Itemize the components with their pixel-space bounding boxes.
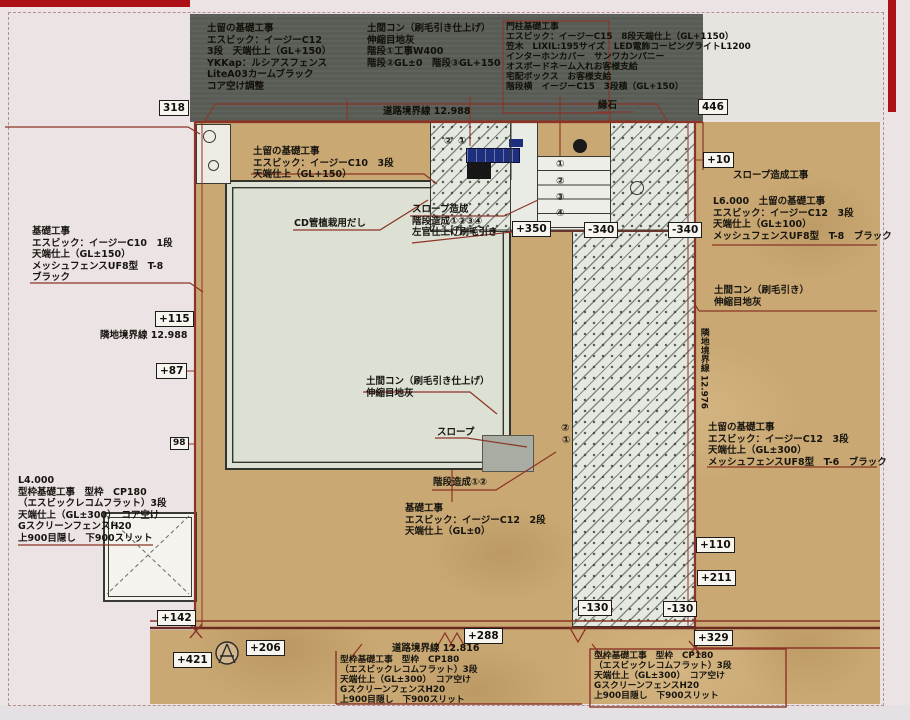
manhole-circle-2 [208,160,219,171]
note-right-slab: 土間コン（刷毛引き） 伸縮目地灰 [714,285,809,308]
dim-box-plus329: +329 [694,630,733,646]
note-bottom-center: 型枠基礎工事 型枠 CP180 （エスビックレコムフラット）3段 天端仕上（GL… [340,656,478,706]
note-slope-build: スロープ造成 階段造成①②③④ 左官仕上げ刷毛引き [412,204,498,239]
note-center-base: 基礎工事 エスビック：イージーC12 2段 天端仕上（GL±0） [405,503,546,538]
dim-box-plus288: +288 [464,628,503,644]
slope-ramp-block [482,435,534,472]
note-right-upper: L6.000 土留の基礎工事 エスビック：イージーC12 3段 天端仕上（GL±… [713,196,892,242]
bottom-screen-strip [0,705,910,720]
dim-box-plus87: +87 [156,363,187,379]
dim-box-plus350: +350 [512,221,551,237]
dim-box-plus115: +115 [155,311,194,327]
dim-box-minus340-left: -340 [584,222,618,238]
dim-box-minus340-right: -340 [668,222,702,238]
dim-box-plus142: +142 [157,610,196,626]
step-number: ② [556,177,564,187]
dim-box-98: 98 [170,437,189,450]
postbox-black [467,162,491,179]
note-center-slab: 土間コン（刷毛引き仕上げ） 伸縮目地灰 [366,376,490,399]
dim-box-plus10: +10 [703,152,734,168]
dim-box-318: 318 [159,100,189,116]
adj-boundary-left-label: 隣地境界線 12.988 [100,330,187,342]
light-dot-black [573,139,587,153]
driveway-hatch [572,230,695,627]
road-boundary-bottom-label: 道路境界線 12.816 [392,643,479,655]
dim-box-446: 446 [698,99,728,115]
dim-box-minus130-right: -130 [663,601,697,617]
step-number: ④ [556,209,564,219]
note-bottom-right: 型枠基礎工事 型枠 CP180 （エスビックレコムフラット）3段 天端仕上（GL… [594,652,732,702]
cd-pipe-label: CD管植栽用だし [294,218,366,230]
step-number: ① [562,436,570,446]
detail-circle [630,181,644,195]
step-number: ② [561,424,569,434]
dim-box-plus421: +421 [173,652,212,668]
note-left-form: L4.000 型枠基礎工事 型枠 CP180 （エスビックレコムフラット）3段 … [18,475,167,544]
slope-label: スロープ [437,427,474,439]
note-retaining-topleft: 土留の基礎工事 エスビック：イージーC12 3段 天端仕上（GL+150） YK… [207,23,372,92]
curb-label: 縁石 [598,100,617,112]
dim-box-minus130-left: -130 [578,600,612,616]
step-build-label: 階段造成①② [433,477,487,489]
gate-post-blue-small [509,139,523,147]
manhole-circle-1 [203,130,216,143]
note-right-lower: 土留の基礎工事 エスビック：イージーC12 3段 天端仕上（GL±300） メッ… [708,422,887,468]
entrance-hatch-right [610,122,695,232]
dim-box-plus211: +211 [697,570,736,586]
step-number: ① [556,160,564,170]
step-number: ① [458,137,466,147]
right-slope-label: スロープ造成工事 [733,170,808,182]
gate-post-blue [466,148,520,163]
note-left-fence: 基礎工事 エスビック：イージーC10 1段 天端仕上（GL±150） メッシュフ… [32,226,173,284]
right-red-strip [888,0,896,112]
note-pad: 土留の基礎工事 エスビック：イージーC10 3段 天端仕上（GL+150） [253,146,394,181]
road-boundary-top-label: 道路境界線 12.988 [383,106,470,118]
step-number: ② [444,137,452,147]
cad-screenshot: 土留の基礎工事 エスビック：イージーC12 3段 天端仕上（GL+150） YK… [0,0,910,720]
titlebar-red-strip [0,0,190,7]
dim-box-plus110: +110 [696,537,735,553]
dim-box-plus206: +206 [246,640,285,656]
step-number: ③ [556,193,564,203]
note-gatepost-topright: 門柱基礎工事 エスビック：イージーC15 8段天端仕上（GL+1150） 笠木 … [506,23,796,93]
